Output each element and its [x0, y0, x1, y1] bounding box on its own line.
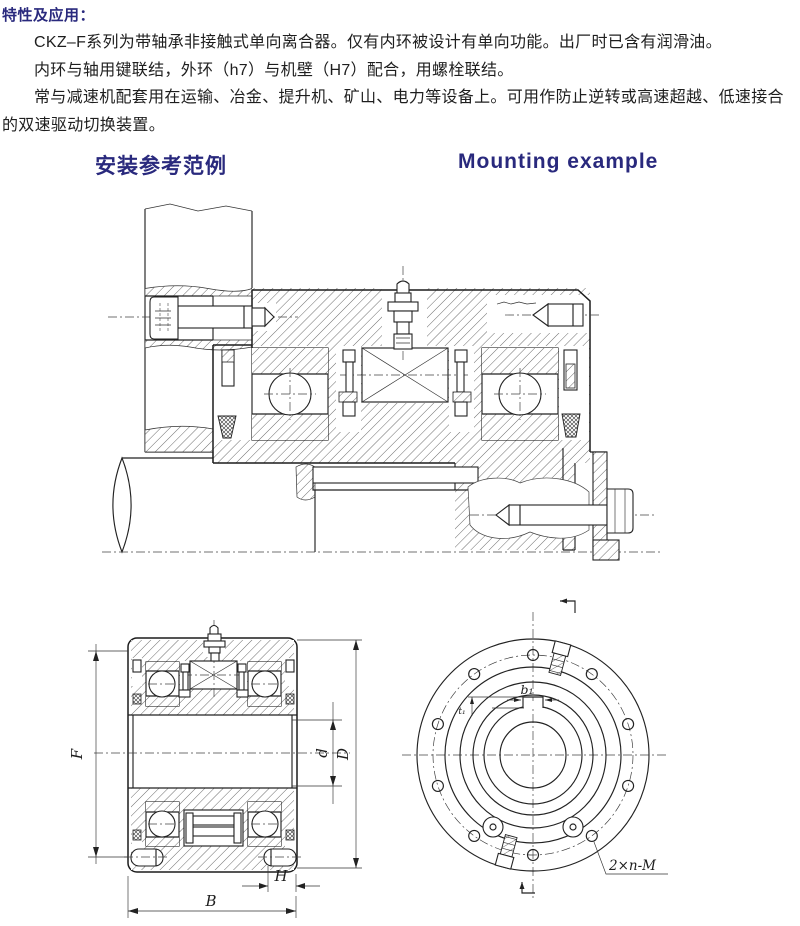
grease-plug-top: [547, 641, 571, 676]
dim-label-d: d: [313, 748, 331, 758]
grease-plug-bottom: [495, 834, 519, 869]
mounting-example-drawing: [102, 204, 660, 560]
dim-label-bolt-pattern: 2×n-M: [608, 858, 657, 874]
catalog-page: 特性及应用： CKZ–F系列为带轴承非接触式单向离合器。仅有内环被设计有单向功能…: [0, 0, 800, 926]
side-view-drawing: F d D H B: [68, 620, 362, 918]
dim-label-keyway-depth: t₁: [458, 707, 465, 717]
dim-label-H: H: [273, 867, 288, 885]
dim-label-F: F: [68, 748, 86, 760]
technical-drawings: F d D H B: [0, 0, 800, 926]
dim-label-D: D: [334, 748, 352, 761]
dim-label-keyway-width: b₁: [520, 682, 533, 697]
dim-label-B: B: [204, 892, 216, 910]
front-view-drawing: b₁ t₁: [402, 599, 668, 899]
